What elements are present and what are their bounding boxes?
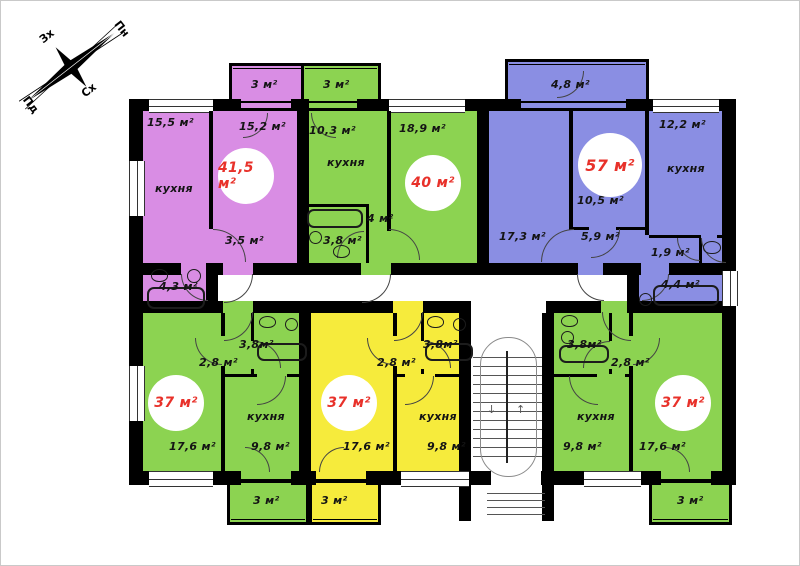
- wall-segment: [722, 306, 736, 485]
- kitchen-area-label: 9,8 м²: [427, 441, 466, 453]
- window: [389, 99, 465, 113]
- wall-segment: [299, 313, 311, 471]
- balcony-area-label: 3 м²: [251, 79, 278, 91]
- toilet-icon: [427, 316, 444, 328]
- partition-wall: [251, 369, 254, 374]
- kitchen-label: кухня: [577, 411, 615, 423]
- compass-west-label: Зх: [37, 27, 57, 46]
- wall-segment: [213, 99, 241, 111]
- balcony-door: [661, 481, 711, 483]
- sink-icon: [309, 231, 322, 244]
- apartment-total-label: 37 м²: [327, 395, 370, 411]
- wall-segment: [253, 301, 393, 313]
- balcony-door: [316, 481, 366, 483]
- bath-area-label: 3,8 м²: [323, 235, 362, 247]
- apartment-total-label: 37 м²: [661, 395, 704, 411]
- partition-wall: [393, 366, 397, 471]
- apartment-total-badge: 41,5 м²: [218, 148, 274, 204]
- door-arc: [577, 274, 604, 301]
- apartment-total-badge: 57 м²: [578, 133, 642, 197]
- apartment-total-label: 41,5 м²: [218, 160, 274, 192]
- balcony-area-label: 3 м²: [321, 495, 348, 507]
- wall-segment: [465, 99, 521, 111]
- kitchen-label: кухня: [667, 163, 705, 175]
- room-area-label: 17,3 м²: [499, 231, 546, 243]
- balcony-area-label: 3 м²: [323, 79, 350, 91]
- sink-icon: [285, 318, 298, 331]
- toilet-icon: [703, 241, 721, 254]
- wall-segment: [542, 313, 554, 471]
- partition-wall: [221, 374, 257, 377]
- partition-wall: [616, 227, 645, 230]
- apartment-total-label: 37 м²: [154, 395, 197, 411]
- wall-segment: [129, 216, 143, 366]
- balcony-area-label: 3 м²: [253, 495, 280, 507]
- partition-wall: [209, 111, 213, 229]
- balcony-door: [521, 101, 626, 103]
- apartment-total-badge: 37 м²: [655, 375, 711, 431]
- sink-icon: [453, 318, 466, 331]
- kitchen-area-label: 9,8 м²: [251, 441, 290, 453]
- hall-area-label: 2,8 м²: [377, 357, 416, 369]
- bath-area-label: 3,8м²: [423, 339, 458, 351]
- partition-wall: [393, 374, 405, 377]
- hall-area-label: 5,9 м²: [581, 231, 620, 243]
- window: [722, 271, 738, 306]
- room-area-label: 15,5 м²: [147, 117, 194, 129]
- wall-segment: [641, 471, 661, 485]
- room-area-label: 10,5 м²: [577, 195, 624, 207]
- wall-segment: [357, 99, 389, 111]
- apartment-total-badge: 40 м²: [405, 155, 461, 211]
- window: [149, 471, 213, 487]
- bath-area-label: 3,8м²: [239, 339, 274, 351]
- toilet-icon: [259, 316, 276, 328]
- kitchen-label: кухня: [155, 183, 193, 195]
- partition-wall: [421, 369, 424, 374]
- kitchen-area-label: 12,2 м²: [659, 119, 706, 131]
- bathtub-icon: [307, 209, 363, 228]
- room-area-label: 17,6 м²: [639, 441, 686, 453]
- bath-area-label: 4,4 м²: [661, 279, 700, 291]
- staircase-divider: [506, 351, 508, 463]
- bath-area-label: 4,3 м²: [159, 281, 198, 293]
- partition-wall: [629, 366, 633, 471]
- balcony-area-label: 4,8 м²: [551, 79, 590, 91]
- wall-segment: [477, 99, 489, 275]
- hall-area-label: 3,5 м²: [225, 235, 264, 247]
- window: [129, 366, 145, 421]
- kitchen-area-label: 10,3 м²: [309, 125, 356, 137]
- wall-segment: [213, 471, 241, 485]
- wall-segment: [627, 263, 639, 313]
- kitchen-area-label: 9,8 м²: [563, 441, 602, 453]
- wc-area-label: 1,9 м²: [651, 247, 690, 259]
- hall-area-label: 4 м²: [367, 213, 394, 225]
- wall-segment: [469, 471, 491, 485]
- window: [401, 471, 469, 487]
- stair-direction-down-icon: ↓: [487, 403, 496, 416]
- room-area-label: 15,2 м²: [239, 121, 286, 133]
- wall-segment: [291, 471, 316, 485]
- partition-wall: [435, 374, 471, 377]
- wall-segment: [546, 301, 601, 313]
- window: [149, 99, 213, 113]
- sink-icon: [639, 293, 652, 306]
- wall-segment: [297, 99, 309, 275]
- compass-north-label: Пн: [111, 18, 132, 39]
- apartment-total-badge: 37 м²: [148, 375, 204, 431]
- balcony-door: [241, 481, 291, 483]
- wall-segment: [129, 99, 143, 161]
- wall-segment: [129, 421, 143, 485]
- partition-wall: [303, 204, 369, 207]
- hall-area-label: 2,8 м²: [199, 357, 238, 369]
- apartment-total-badge: 37 м²: [321, 375, 377, 431]
- apartment-total-label: 40 м²: [411, 175, 454, 191]
- floor-plan: Пн Зх Сх Пд: [0, 0, 800, 566]
- window: [584, 471, 641, 487]
- room-area-label: 18,9 м²: [399, 123, 446, 135]
- partition-wall: [569, 111, 573, 227]
- room-area-label: 17,6 м²: [169, 441, 216, 453]
- partition-wall: [221, 366, 225, 471]
- stair-direction-up-icon: ↑: [516, 403, 525, 416]
- kitchen-label: кухня: [327, 157, 365, 169]
- wall-segment: [366, 471, 401, 485]
- wall-segment: [626, 99, 653, 111]
- wall-segment: [423, 301, 471, 313]
- kitchen-label: кухня: [247, 411, 285, 423]
- partition-wall: [609, 369, 612, 374]
- toilet-icon: [561, 315, 578, 327]
- balcony-area-label: 3 м²: [677, 495, 704, 507]
- door-arc: [224, 274, 253, 303]
- door-arc: [362, 274, 391, 303]
- room-area-label: 17,6 м²: [343, 441, 390, 453]
- hall-area-label: 2,8 м²: [611, 357, 650, 369]
- kitchen-label: кухня: [419, 411, 457, 423]
- apartment-total-label: 57 м²: [585, 156, 634, 175]
- partition-wall: [287, 374, 305, 377]
- balcony-door: [241, 101, 291, 103]
- bath-area-label: 3,8м²: [567, 339, 602, 351]
- window: [653, 99, 719, 113]
- partition-wall: [645, 111, 649, 235]
- entrance-steps: [487, 493, 545, 517]
- balcony-door: [309, 101, 357, 103]
- compass-east-label: Сх: [79, 80, 99, 100]
- window: [129, 161, 145, 216]
- partition-wall: [625, 374, 633, 377]
